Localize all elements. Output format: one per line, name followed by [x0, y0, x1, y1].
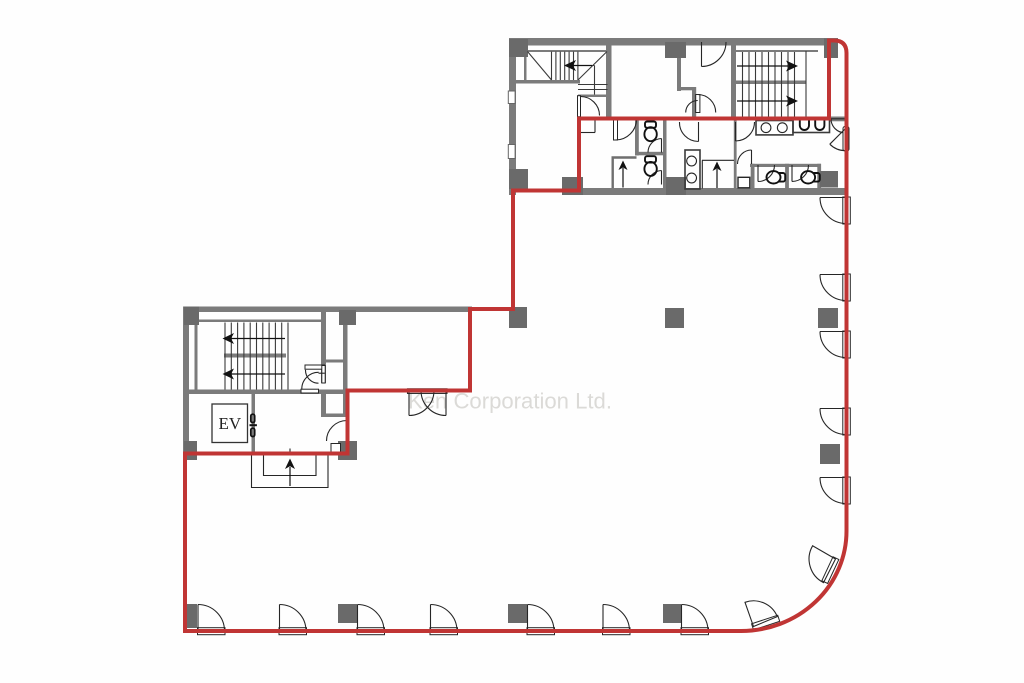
- svg-text:EV: EV: [218, 414, 241, 433]
